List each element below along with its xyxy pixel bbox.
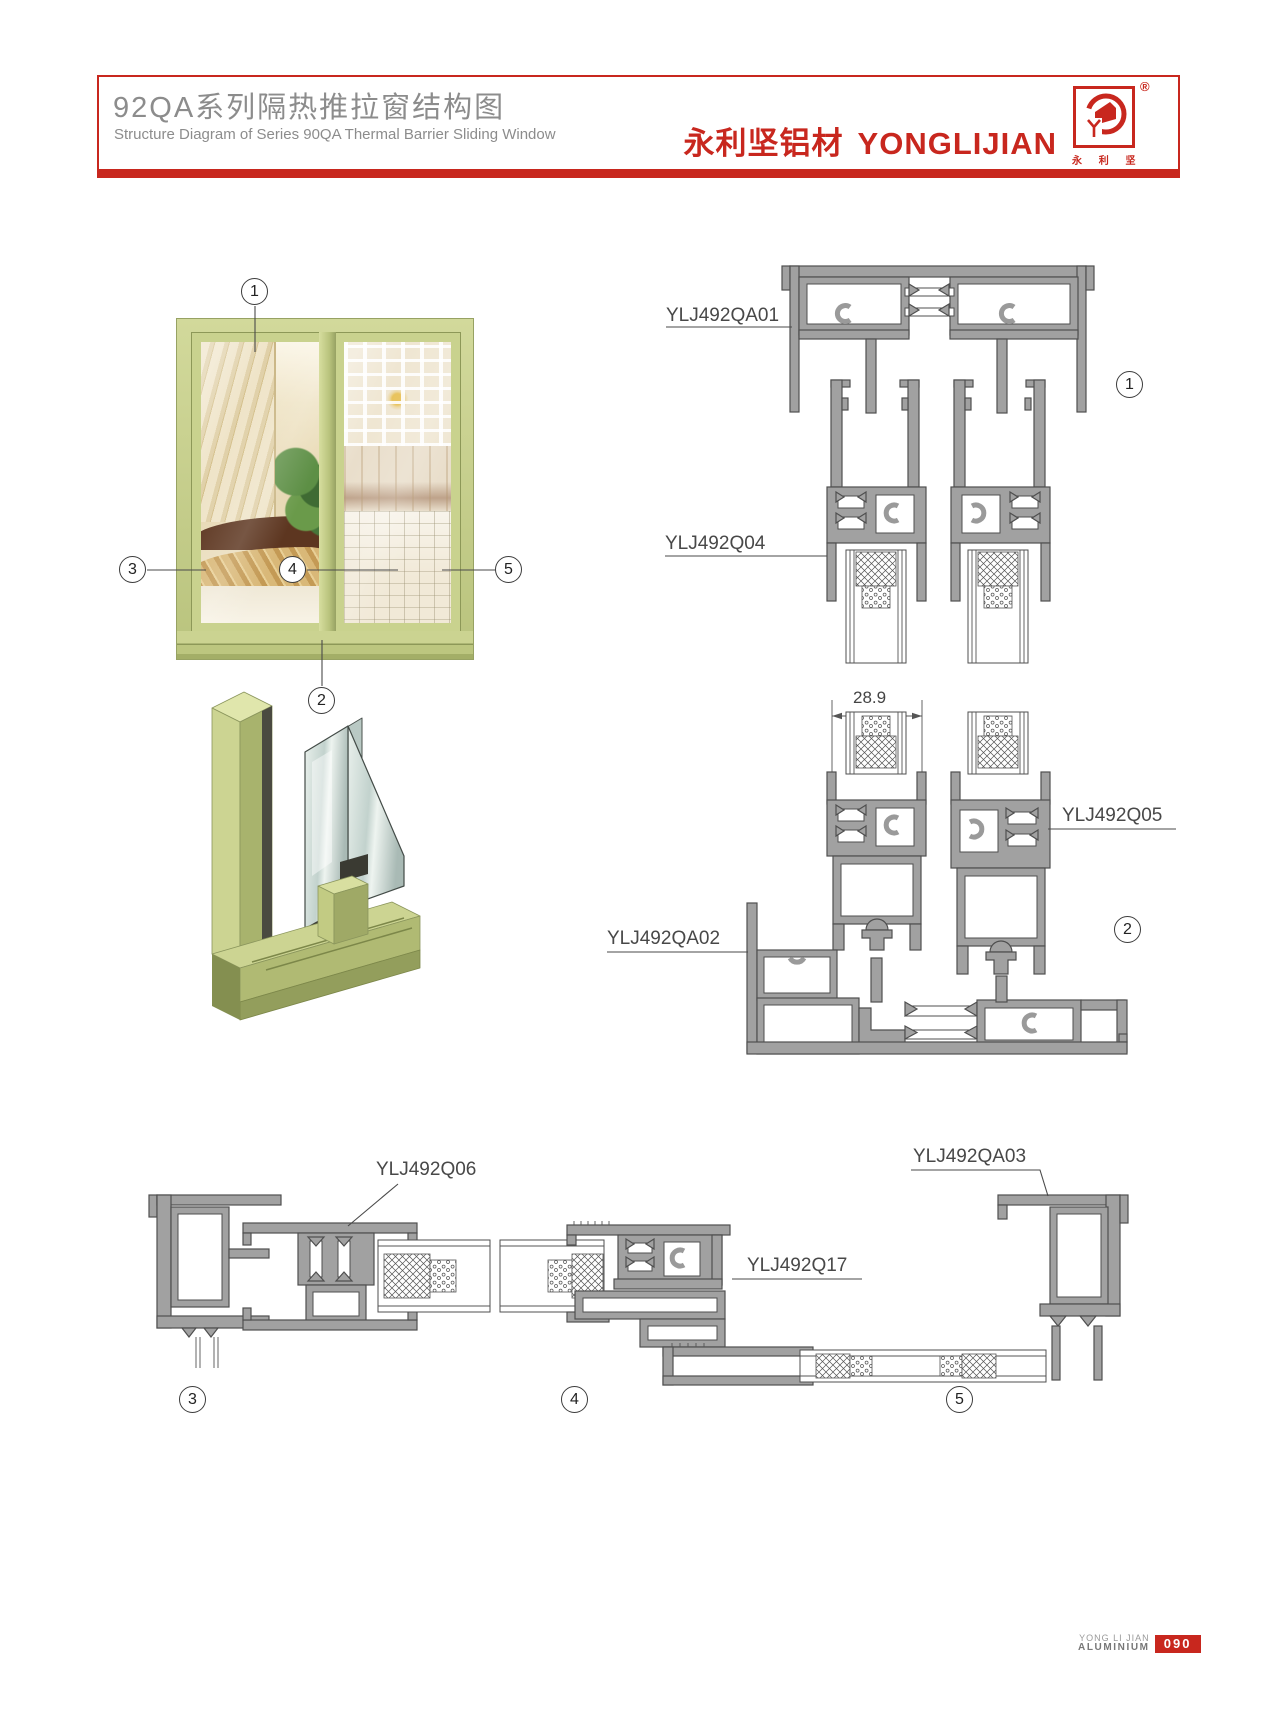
callout-leader-lines [147,306,495,686]
section-sash-bottom-rails [827,772,1050,974]
section-left-jamb [149,1195,281,1368]
glass-units-lower [846,712,1028,774]
glass-run-a [378,1240,604,1312]
section-bottom-sash [663,1343,1046,1385]
callout-5-window: 5 [495,556,522,583]
profile-label-qa03: YLJ492QA03 [913,1146,1026,1168]
callout-1-window: 1 [241,278,268,305]
technical-sections-drawing [0,0,1277,1721]
callout-2-window: 2 [308,687,335,714]
callout-3-window: 3 [119,556,146,583]
callout-5-section: 5 [946,1386,973,1413]
profile-label-q04: YLJ492Q04 [665,533,765,555]
callout-2-section: 2 [1114,916,1141,943]
dimension-value: 28.9 [853,688,886,708]
callout-4-section: 4 [561,1386,588,1413]
profile-label-q06: YLJ492Q06 [376,1159,476,1181]
profile-label-q17: YLJ492Q17 [747,1255,847,1277]
section-sash-top-rails [831,380,1045,487]
corner-3d-render [212,692,420,1020]
profile-label-qa02: YLJ492QA02 [607,928,720,950]
label-leader-lines [348,327,1176,1279]
glass-units-upper [846,550,1028,663]
section-sill-frame [747,903,1127,1054]
profile-label-q05: YLJ492Q05 [1062,805,1162,827]
profile-label-qa01: YLJ492QA01 [666,305,779,327]
callout-3-section: 3 [179,1386,206,1413]
catalog-page: 92QA系列隔热推拉窗结构图 Structure Diagram of Seri… [0,0,1277,1721]
callout-4-window: 4 [279,556,306,583]
section-head-frame [782,266,1094,413]
callout-1-section: 1 [1116,371,1143,398]
